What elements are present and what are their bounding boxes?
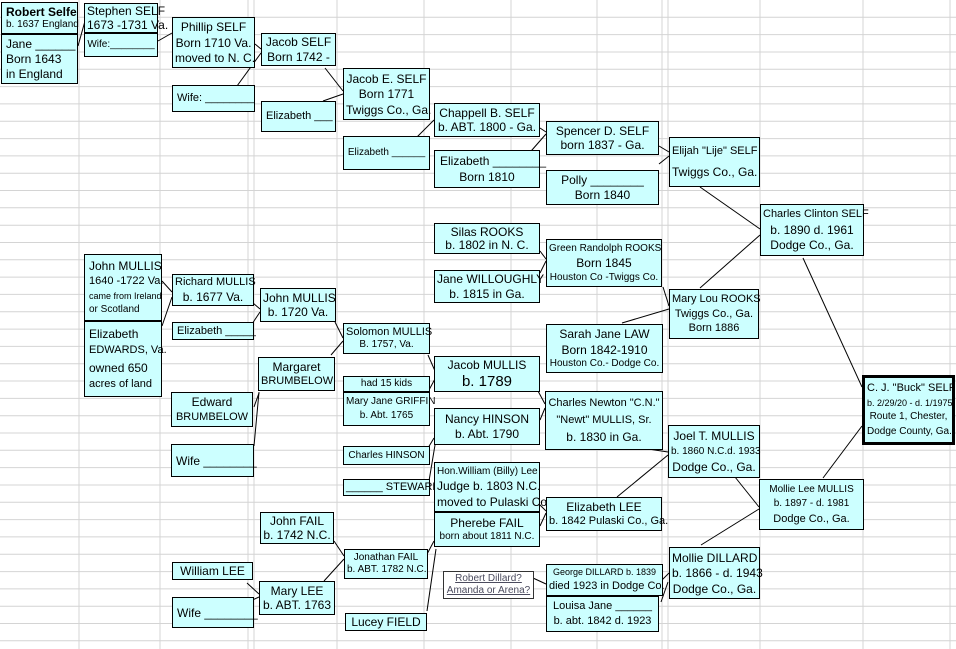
- jane-willoughly-text-1: b. 1815 in Ga.: [435, 288, 539, 300]
- person-boxes: Robert Selfeb. 1637 EnglandJane ______Bo…: [0, 0, 956, 649]
- charles-clinton-self-text-0: Charles Clinton SELF: [761, 209, 863, 220]
- person-box-sarah-jane-law[interactable]: Sarah Jane LAWBorn 1842-1910Houston Co.-…: [546, 324, 663, 373]
- elizabeth-edwards-text-2: owned 650: [85, 362, 161, 374]
- phillip-self-text-0: Phillip SELF: [173, 21, 254, 33]
- margaret-brumbelow-text-1: BRUMBELOW: [259, 376, 334, 387]
- green-randolph-rooks-text-1: Born 1845: [547, 257, 661, 269]
- person-box-elizabeth-lee[interactable]: Elizabeth LEEb. 1842 Pulaski Co., Ga.: [546, 497, 662, 531]
- green-randolph-rooks-text-0: Green Randolph ROOKS: [547, 244, 661, 254]
- joel-t-mullis-text-1: b. 1860 N.C.d. 1933: [669, 447, 759, 457]
- john-mullis-1640-text-0: John MULLIS: [85, 260, 161, 272]
- edward-wife-text-0: Wife ________: [172, 455, 253, 467]
- person-box-mary-lee[interactable]: Mary LEEb. ABT. 1763: [259, 581, 335, 615]
- richard-mullis-text-0: Richard MULLIS: [173, 277, 253, 288]
- person-box-cj-buck-self[interactable]: C. J. "Buck" SELFb. 2/29/20 - d. 1/1975R…: [862, 375, 955, 445]
- mollie-dillard-text-1: b. 1866 - d. 1943: [670, 567, 759, 579]
- person-box-solomon-mullis[interactable]: Solomon MULLISB. 1757, Va.: [343, 323, 430, 354]
- person-box-stephen-self[interactable]: Stephen SELF1673 -1731 Va.: [84, 3, 158, 33]
- george-dillard-text-0: George DILLARD b. 1839: [547, 568, 662, 577]
- john-mullis-1640-text-3: or Scotland: [85, 305, 161, 315]
- jane-willoughly-text-0: Jane WILLOUGHLY: [435, 273, 539, 285]
- pherebe-fail-text-1: born about 1811 N.C.: [435, 532, 539, 542]
- cj-buck-self-text-1: b. 2/29/20 - d. 1/1975: [865, 399, 952, 408]
- person-box-george-dillard[interactable]: George DILLARD b. 1839died 1923 in Dodge…: [546, 564, 663, 596]
- edward-brumbelow-text-1: BRUMBELOW: [172, 412, 252, 423]
- person-box-polly[interactable]: Polly ________Born 1840: [546, 170, 659, 205]
- richard-mullis-text-1: b. 1677 Va.: [173, 291, 253, 303]
- person-box-robert-selfe[interactable]: Robert Selfeb. 1637 England: [1, 2, 78, 34]
- jacob-e-self-text-1: Born 1771: [344, 88, 429, 100]
- person-box-chappell-b-self[interactable]: Chappell B. SELFb. ABT. 1800 - Ga.: [434, 103, 540, 137]
- mary-lee-text-0: Mary LEE: [260, 585, 334, 597]
- person-box-phillip-wife[interactable]: Wife: ________: [172, 85, 255, 112]
- phillip-self-text-1: Born 1710 Va.: [173, 37, 254, 49]
- jonathan-fail-text-1: b. ABT. 1782 N.C.: [345, 565, 427, 575]
- joel-t-mullis-text-0: Joel T. MULLIS: [669, 430, 759, 442]
- sarah-jane-law-text-2: Houston Co.- Dodge Co.: [547, 359, 662, 369]
- charles-newton-mullis-text-0: Charles Newton "C.N.": [546, 398, 662, 409]
- charles-hinson-text-0: Charles HINSON: [344, 451, 429, 461]
- polly-text-0: Polly ________: [547, 174, 658, 186]
- hon-william-lee-text-2: moved to Pulaski Co.: [435, 496, 539, 508]
- cj-buck-self-text-0: C. J. "Buck" SELF: [865, 383, 952, 394]
- mollie-dillard-text-2: Dodge Co., Ga.: [670, 583, 759, 595]
- mary-lou-rooks-text-0: Mary Lou ROOKS: [670, 294, 758, 305]
- solomon-mullis-text-1: B. 1757, Va.: [344, 340, 429, 350]
- had-15-kids-text-0: had 15 kids: [344, 379, 429, 389]
- family-tree-canvas: Robert Selfeb. 1637 EnglandJane ______Bo…: [0, 0, 956, 649]
- nancy-hinson-text-0: Nancy HINSON: [435, 413, 539, 425]
- person-box-jonathan-fail[interactable]: Jonathan FAILb. ABT. 1782 N.C.: [344, 549, 428, 579]
- charles-clinton-self-text-1: b. 1890 d. 1961: [761, 224, 863, 236]
- jacob-self-text-0: Jacob SELF: [262, 36, 335, 48]
- person-box-spencer-d-self[interactable]: Spencer D. SELFborn 1837 - Ga.: [546, 121, 659, 155]
- louisa-jane-text-1: b. abt. 1842 d. 1923: [547, 616, 658, 627]
- robert-selfe-text-0: Robert Selfe: [2, 6, 77, 18]
- louisa-jane-text-0: Louisa Jane ______: [547, 601, 658, 612]
- person-box-charles-newton-mullis[interactable]: Charles Newton "C.N.""Newt" MULLIS, Sr.b…: [545, 391, 663, 450]
- charles-newton-mullis-text-2: b. 1830 in Ga.: [546, 431, 662, 443]
- mary-lou-rooks-text-2: Born 1886: [670, 323, 758, 334]
- mary-lee-text-1: b. ABT. 1763: [260, 599, 334, 611]
- person-box-green-randolph-rooks[interactable]: Green Randolph ROOKSBorn 1845Houston Co …: [546, 239, 662, 287]
- person-box-william-wife[interactable]: Wife ________: [172, 597, 254, 628]
- john-mullis-1640-text-1: 1640 -1722 Va.: [85, 276, 161, 287]
- william-lee-text-0: William LEE: [173, 565, 252, 577]
- jacob-e-self-text-2: Twiggs Co., Ga.: [344, 104, 429, 116]
- chappell-wife-elizabeth-text-0: Elizabeth ________: [435, 155, 539, 167]
- person-box-jane-willoughly[interactable]: Jane WILLOUGHLYb. 1815 in Ga.: [434, 270, 540, 303]
- elizabeth-edwards-text-0: Elizabeth: [85, 328, 161, 340]
- person-box-richard-wife-elizabeth[interactable]: Elizabeth _____: [172, 322, 254, 340]
- jane-blank-text-1: Born 1643: [2, 53, 77, 65]
- person-box-robert-dillard-note[interactable]: Robert Dillard?Amanda or Arena?: [443, 571, 534, 599]
- margaret-brumbelow-text-0: Margaret: [259, 361, 334, 373]
- person-box-john-mullis-1640[interactable]: John MULLIS1640 -1722 Va.came from Irela…: [84, 254, 162, 321]
- person-box-elizabeth-edwards[interactable]: ElizabethEDWARDS, Va.owned 650acres of l…: [84, 321, 162, 397]
- edward-brumbelow-text-0: Edward: [172, 396, 252, 408]
- person-box-jacob-wife-elizabeth[interactable]: Elizabeth ___: [261, 101, 336, 132]
- mary-lou-rooks-text-1: Twiggs Co., Ga.: [670, 309, 758, 320]
- person-box-charles-hinson[interactable]: Charles HINSON: [343, 446, 430, 465]
- john-mullis-1720-text-0: John MULLIS: [261, 292, 335, 304]
- person-box-lucey-field[interactable]: Lucey FIELD: [345, 613, 427, 631]
- person-box-joel-t-mullis[interactable]: Joel T. MULLISb. 1860 N.C.d. 1933Dodge C…: [668, 425, 760, 478]
- person-box-jacob-e-wife-elizabeth[interactable]: Elizabeth ______: [343, 136, 430, 170]
- person-box-steward[interactable]: ______ STEWARD: [343, 479, 430, 496]
- jacob-e-wife-elizabeth-text-0: Elizabeth ______: [344, 148, 429, 158]
- jacob-wife-elizabeth-text-0: Elizabeth ___: [262, 111, 335, 122]
- hon-william-lee-text-0: Hon.William (Billy) Lee: [435, 467, 539, 477]
- pherebe-fail-text-0: Pherebe FAIL: [435, 517, 539, 529]
- robert-selfe-text-1: b. 1637 England: [2, 20, 77, 30]
- person-box-nancy-hinson[interactable]: Nancy HINSONb. Abt. 1790: [434, 408, 540, 445]
- person-box-elijah-self[interactable]: Elijah "Lije" SELFTwiggs Co., Ga.: [669, 137, 760, 187]
- william-wife-text-0: Wife ________: [173, 607, 253, 619]
- mary-jane-griffin-text-1: b. Abt. 1765: [344, 411, 429, 421]
- mollie-lee-mullis-text-2: Dodge Co., Ga.: [760, 514, 863, 525]
- richard-wife-elizabeth-text-0: Elizabeth _____: [173, 326, 253, 337]
- elijah-self-text-0: Elijah "Lije" SELF: [670, 146, 759, 157]
- person-box-charles-clinton-self[interactable]: Charles Clinton SELFb. 1890 d. 1961Dodge…: [760, 204, 864, 256]
- person-box-mollie-dillard[interactable]: Mollie DILLARDb. 1866 - d. 1943Dodge Co.…: [669, 547, 760, 599]
- silas-rooks-text-1: b. 1802 in N. C.: [435, 239, 539, 251]
- person-box-jacob-mullis[interactable]: Jacob MULLISb. 1789: [434, 356, 540, 392]
- solomon-mullis-text-0: Solomon MULLIS: [344, 327, 429, 338]
- person-box-louisa-jane[interactable]: Louisa Jane ______b. abt. 1842 d. 1923: [546, 596, 659, 632]
- person-box-margaret-brumbelow[interactable]: MargaretBRUMBELOW: [258, 357, 335, 391]
- person-box-hon-william-lee[interactable]: Hon.William (Billy) LeeJudge b. 1803 N.C…: [434, 462, 540, 512]
- charles-newton-mullis-text-1: "Newt" MULLIS, Sr.: [546, 415, 662, 426]
- person-box-phillip-self[interactable]: Phillip SELFBorn 1710 Va.moved to N. C.: [172, 17, 255, 68]
- john-mullis-1640-text-2: came from Ireland: [85, 292, 161, 301]
- person-box-mary-lou-rooks[interactable]: Mary Lou ROOKSTwiggs Co., Ga.Born 1886: [669, 289, 759, 339]
- jacob-mullis-text-1: b. 1789: [435, 374, 539, 389]
- cj-buck-self-text-3: Dodge County, Ga.: [865, 427, 952, 437]
- person-box-had-15-kids[interactable]: had 15 kids: [343, 376, 430, 392]
- person-box-chappell-wife-elizabeth[interactable]: Elizabeth ________Born 1810: [434, 150, 540, 188]
- person-box-mollie-lee-mullis[interactable]: Mollie Lee MULLISb. 1897 - d. 1981Dodge …: [759, 479, 864, 530]
- hon-william-lee-text-1: Judge b. 1803 N.C.: [435, 480, 539, 492]
- chappell-b-self-text-1: b. ABT. 1800 - Ga.: [435, 121, 539, 133]
- john-mullis-1720-text-1: b. 1720 Va.: [261, 306, 335, 318]
- elijah-self-text-1: Twiggs Co., Ga.: [670, 166, 759, 178]
- person-box-silas-rooks[interactable]: Silas ROOKSb. 1802 in N. C.: [434, 223, 540, 254]
- jonathan-fail-text-0: Jonathan FAIL: [345, 553, 427, 563]
- robert-dillard-note-text-0: Robert Dillard?: [444, 574, 533, 584]
- person-box-stephen-wife[interactable]: Wife:________: [84, 33, 158, 57]
- person-box-jacob-self[interactable]: Jacob SELFBorn 1742 -: [261, 33, 336, 66]
- silas-rooks-text-0: Silas ROOKS: [435, 226, 539, 238]
- stephen-self-text-0: Stephen SELF: [85, 5, 157, 17]
- phillip-wife-text-0: Wife: ________: [173, 93, 254, 104]
- jacob-e-self-text-0: Jacob E. SELF: [344, 73, 429, 85]
- joel-t-mullis-text-2: Dodge Co., Ga.: [669, 461, 759, 473]
- person-box-pherebe-fail[interactable]: Pherebe FAILborn about 1811 N.C.: [434, 512, 540, 547]
- green-randolph-rooks-text-2: Houston Co -Twiggs Co.: [547, 273, 661, 283]
- spencer-d-self-text-1: born 1837 - Ga.: [547, 139, 658, 151]
- chappell-wife-elizabeth-text-1: Born 1810: [435, 171, 539, 183]
- mollie-dillard-text-0: Mollie DILLARD: [670, 552, 759, 564]
- mollie-lee-mullis-text-1: b. 1897 - d. 1981: [760, 499, 863, 509]
- elizabeth-lee-text-0: Elizabeth LEE: [547, 501, 661, 513]
- person-box-richard-mullis[interactable]: Richard MULLISb. 1677 Va.: [172, 274, 254, 306]
- mollie-lee-mullis-text-0: Mollie Lee MULLIS: [760, 485, 863, 495]
- jacob-self-text-1: Born 1742 -: [262, 51, 335, 63]
- george-dillard-text-1: died 1923 in Dodge Co.: [547, 581, 662, 592]
- chappell-b-self-text-0: Chappell B. SELF: [435, 107, 539, 119]
- john-fail-text-1: b. 1742 N.C.: [261, 529, 333, 541]
- sarah-jane-law-text-0: Sarah Jane LAW: [547, 328, 662, 340]
- person-box-jacob-e-self[interactable]: Jacob E. SELFBorn 1771Twiggs Co., Ga.: [343, 68, 430, 120]
- person-box-jane-blank[interactable]: Jane ______Born 1643in England: [1, 34, 78, 84]
- person-box-edward-wife[interactable]: Wife ________: [171, 444, 254, 477]
- mary-jane-griffin-text-0: Mary Jane GRIFFIN: [344, 397, 429, 407]
- person-box-william-lee[interactable]: William LEE: [172, 562, 253, 580]
- jacob-mullis-text-0: Jacob MULLIS: [435, 359, 539, 371]
- jane-blank-text-0: Jane ______: [2, 38, 77, 50]
- charles-clinton-self-text-2: Dodge Co., Ga.: [761, 239, 863, 251]
- spencer-d-self-text-0: Spencer D. SELF: [547, 125, 658, 137]
- elizabeth-lee-text-1: b. 1842 Pulaski Co., Ga.: [547, 516, 661, 527]
- robert-dillard-note-text-1: Amanda or Arena?: [444, 586, 533, 596]
- nancy-hinson-text-1: b. Abt. 1790: [435, 428, 539, 440]
- sarah-jane-law-text-1: Born 1842-1910: [547, 344, 662, 356]
- elizabeth-edwards-text-1: EDWARDS, Va.: [85, 345, 161, 356]
- stephen-self-text-1: 1673 -1731 Va.: [85, 19, 157, 31]
- john-fail-text-0: John FAIL: [261, 515, 333, 527]
- person-box-john-fail[interactable]: John FAILb. 1742 N.C.: [260, 512, 334, 544]
- elizabeth-edwards-text-3: acres of land: [85, 379, 161, 390]
- person-box-mary-jane-griffin[interactable]: Mary Jane GRIFFINb. Abt. 1765: [343, 392, 430, 426]
- phillip-self-text-2: moved to N. C.: [173, 52, 254, 64]
- person-box-john-mullis-1720[interactable]: John MULLISb. 1720 Va.: [260, 288, 336, 322]
- steward-text-0: ______ STEWARD: [344, 482, 429, 493]
- person-box-edward-brumbelow[interactable]: EdwardBRUMBELOW: [171, 392, 253, 427]
- jane-blank-text-2: in England: [2, 68, 77, 80]
- polly-text-1: Born 1840: [547, 189, 658, 201]
- lucey-field-text-0: Lucey FIELD: [346, 616, 426, 628]
- cj-buck-self-text-2: Route 1, Chester,: [865, 412, 952, 422]
- stephen-wife-text-0: Wife:________: [85, 40, 157, 50]
